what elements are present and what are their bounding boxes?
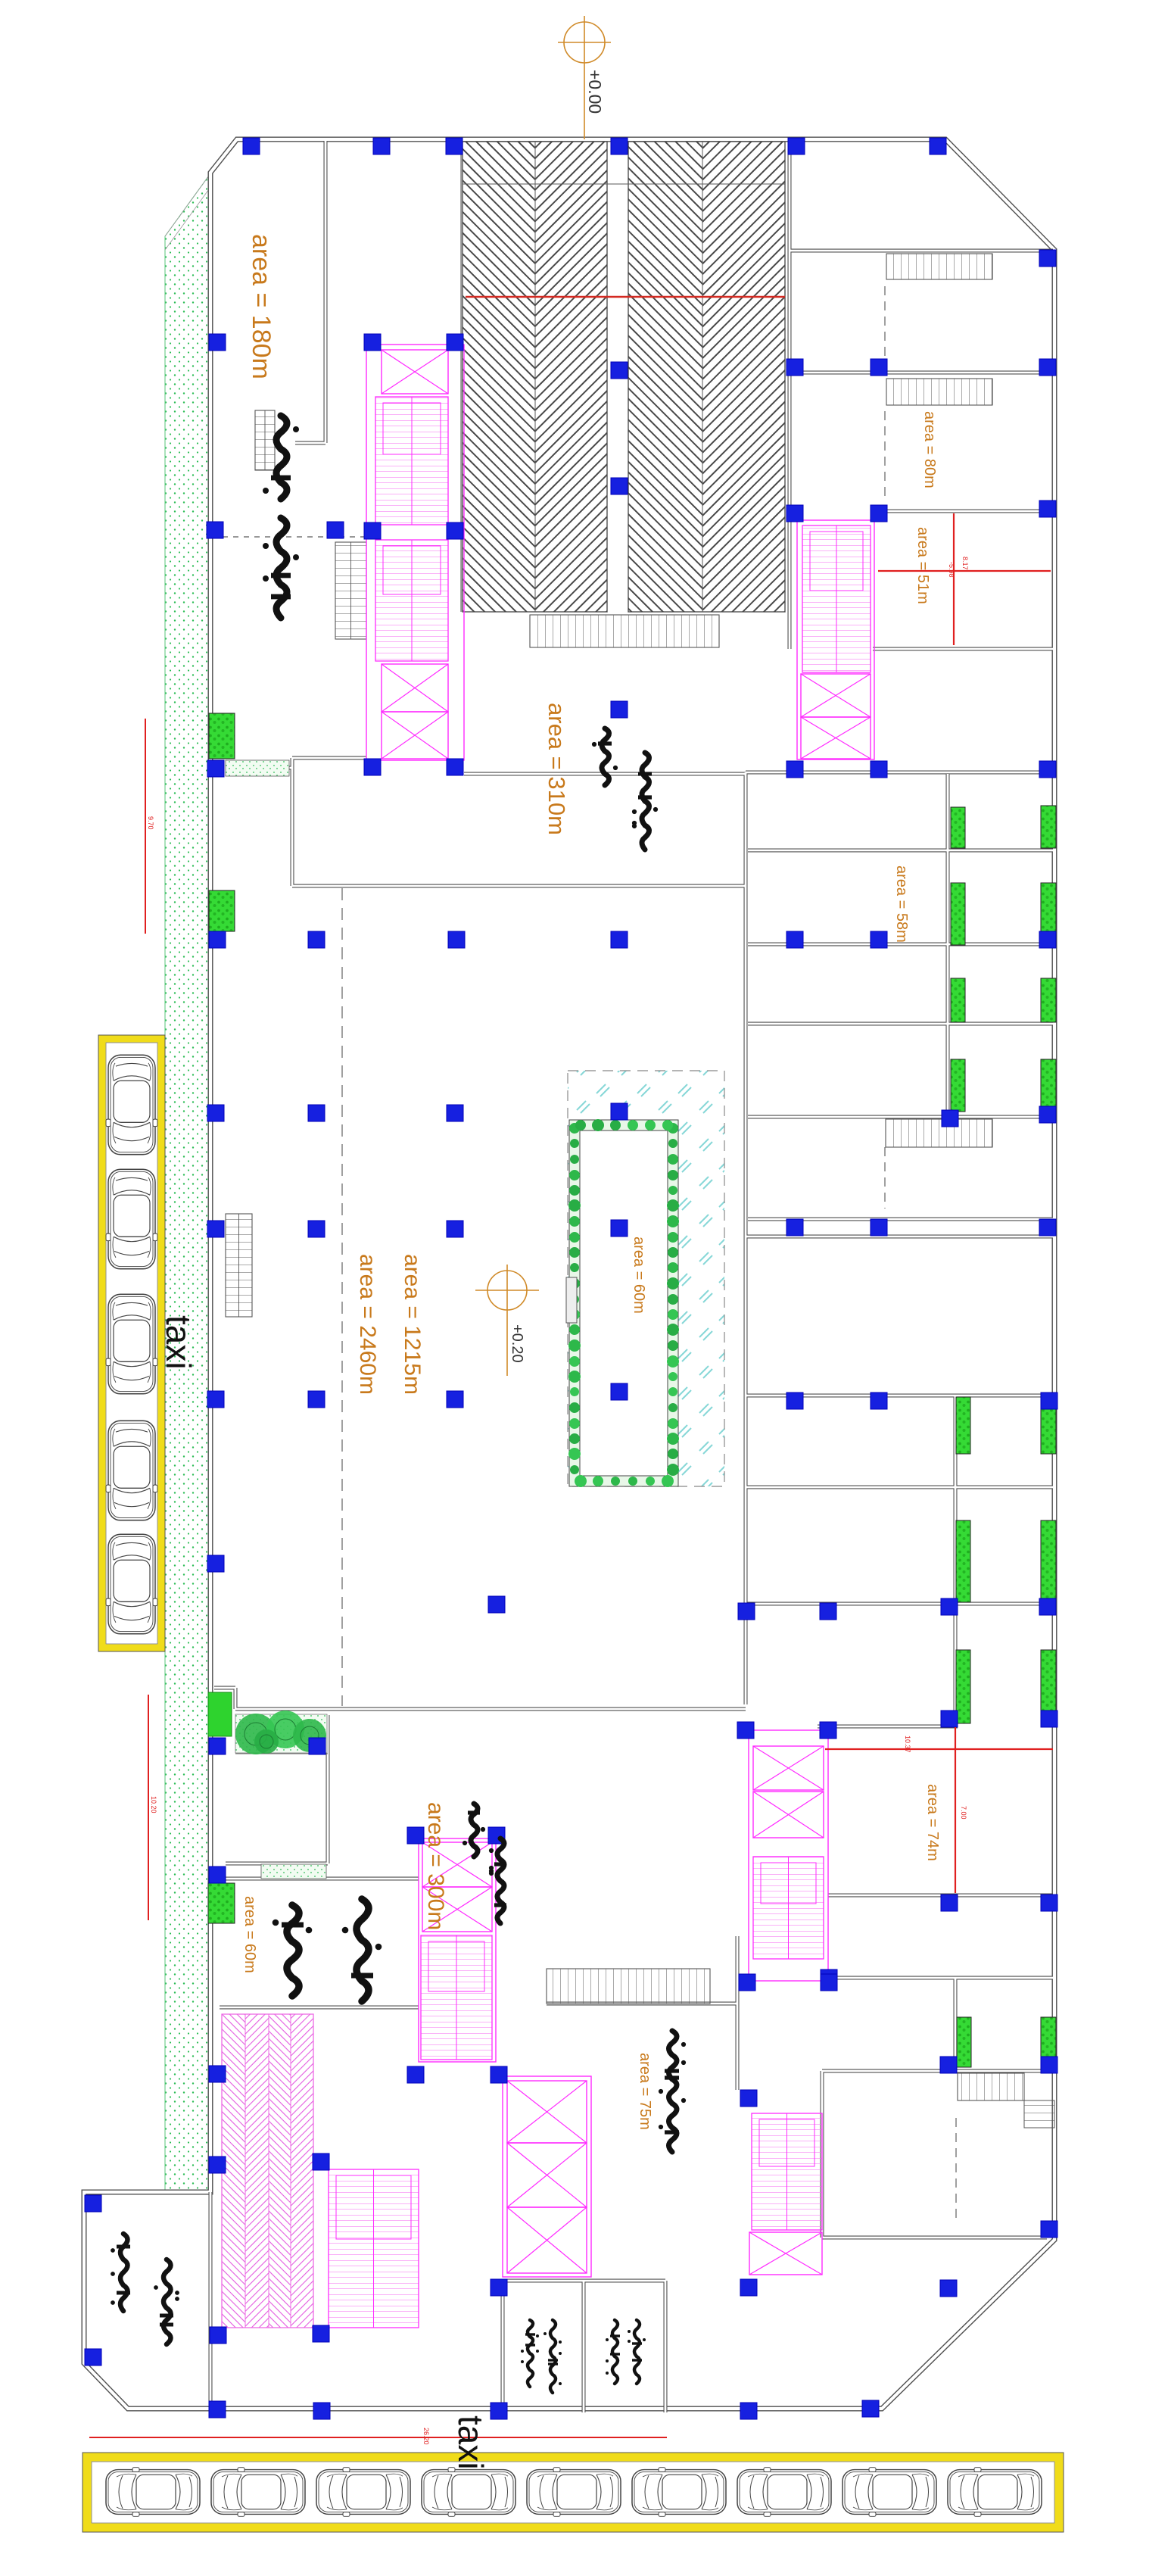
svg-text:10.37: 10.37 — [904, 1736, 911, 1753]
svg-text:area = 80m: area = 80m — [921, 411, 938, 488]
svg-text:area = 60m: area = 60m — [241, 1896, 258, 1973]
svg-text:area = 74m: area = 74m — [924, 1784, 941, 1861]
svg-text:area = 51m: area = 51m — [914, 527, 931, 604]
svg-text:area = 75m: area = 75m — [637, 2053, 653, 2130]
svg-text:area = 58m: area = 58m — [893, 865, 910, 943]
svg-text:-5.98: -5.98 — [948, 562, 955, 578]
svg-text:area = 300m: area = 300m — [423, 1802, 448, 1930]
svg-text:10.20: 10.20 — [150, 1796, 157, 1813]
svg-text:area = 60m: area = 60m — [631, 1237, 647, 1314]
svg-text:area = 310m: area = 310m — [544, 703, 570, 835]
svg-text:8.17: 8.17 — [961, 557, 969, 570]
svg-text:26.20: 26.20 — [422, 2428, 430, 2445]
svg-text:area = 2460m: area = 2460m — [355, 1254, 380, 1395]
svg-text:+0.00: +0.00 — [585, 70, 605, 114]
svg-text:taxi: taxi — [159, 1315, 198, 1370]
svg-text:area = 180m: area = 180m — [247, 234, 276, 379]
svg-text:+0.20: +0.20 — [509, 1324, 525, 1363]
svg-text:taxi: taxi — [451, 2415, 491, 2470]
svg-text:9.70: 9.70 — [147, 816, 154, 830]
svg-text:7.00: 7.00 — [960, 1806, 967, 1820]
svg-text:area = 1215m: area = 1215m — [400, 1254, 425, 1395]
